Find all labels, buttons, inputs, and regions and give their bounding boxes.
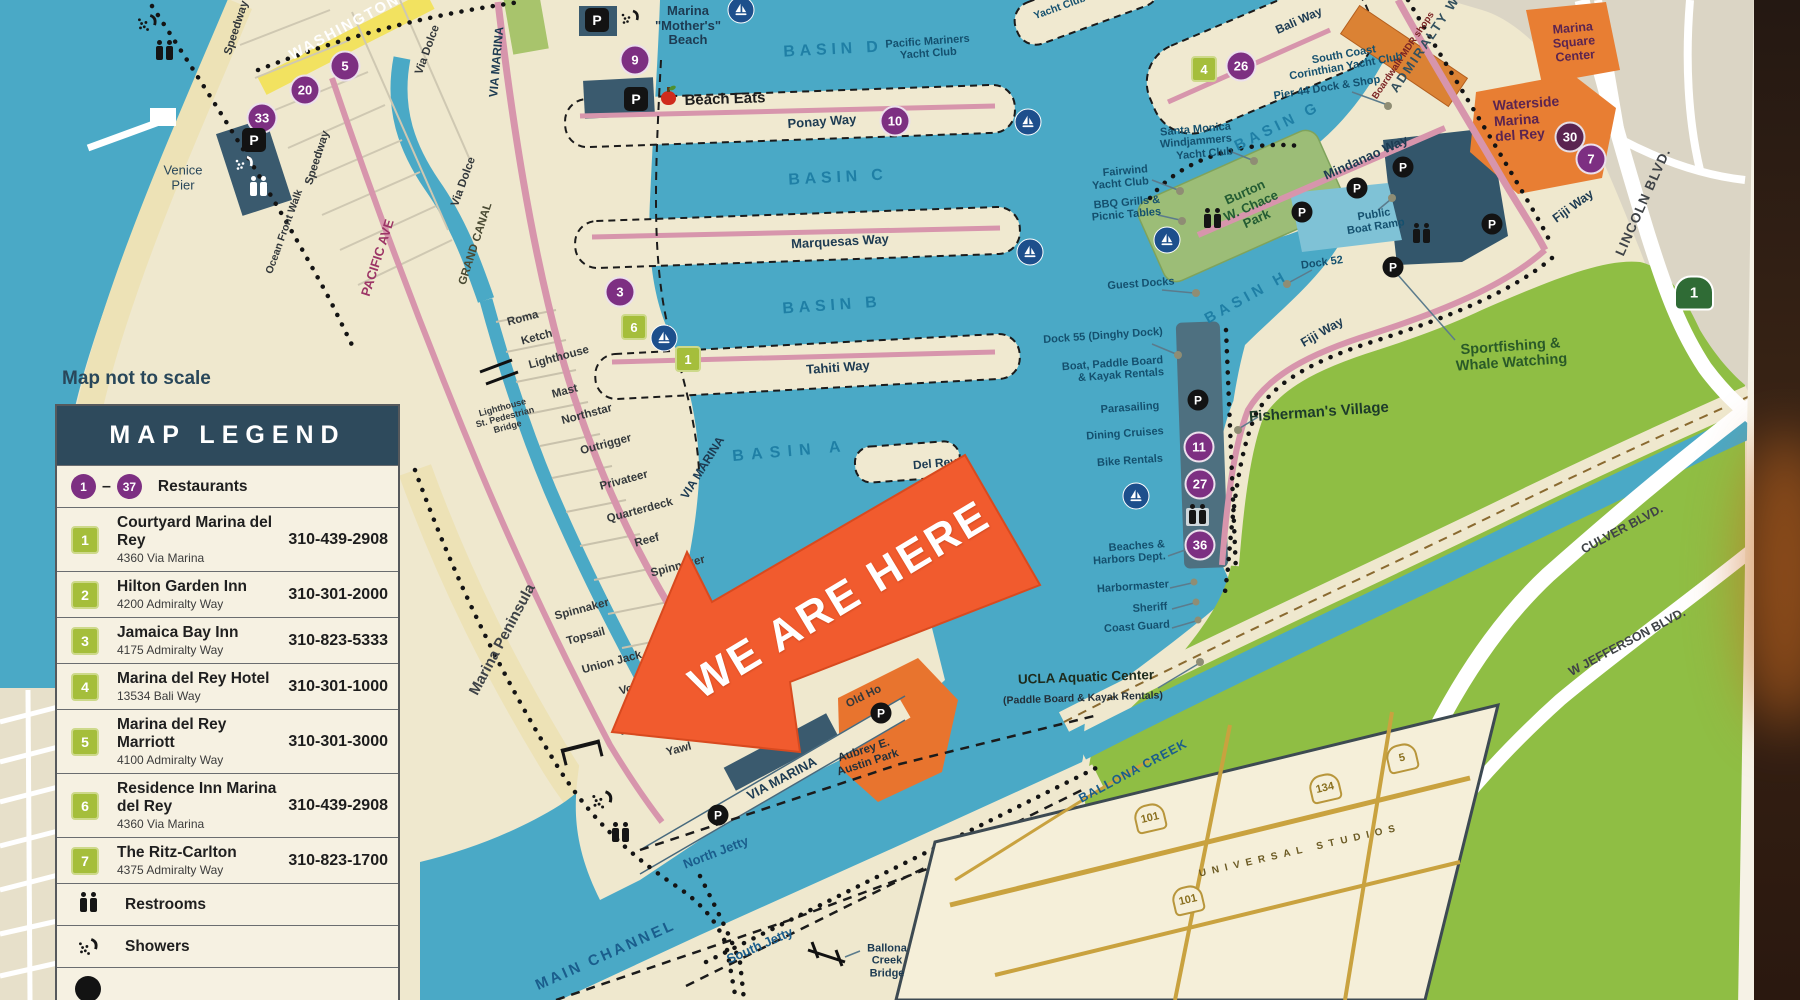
restaurant-marker-26: 26 <box>1226 51 1257 82</box>
hotel-marker-4: 4 <box>1191 56 1217 82</box>
hotel-name: Courtyard Marina del Rey <box>117 514 282 550</box>
beaches-harbors-label: Beaches & Harbors Dept. <box>1092 538 1166 568</box>
range-dash: – <box>102 478 111 496</box>
hotel-name: Marina del Rey Hotel <box>117 670 282 688</box>
restrooms-icon <box>1204 214 1221 228</box>
hotel-phone: 310-823-5333 <box>288 632 388 650</box>
showers-icon <box>134 10 160 41</box>
hotel-name: Jamaica Bay Inn <box>117 624 282 642</box>
restrooms-icon <box>156 46 173 60</box>
hotel-address: 4360 Via Marina <box>117 817 282 831</box>
parking-icon: P <box>708 805 729 826</box>
hotel-name: The Ritz-Carlton <box>117 844 282 862</box>
restaurant-marker-20: 20 <box>290 75 321 106</box>
legend-entry-row: 5 Marina del Rey Marriott4100 Admiralty … <box>57 709 398 773</box>
restrooms-icon <box>1186 508 1209 526</box>
parking-icon: P <box>585 8 609 32</box>
hotel-phone: 310-301-1000 <box>288 678 388 696</box>
hotel-phone: 310-439-2908 <box>288 531 388 549</box>
restaurant-marker-10: 10 <box>880 106 911 137</box>
hotel-marker-3: 3 <box>71 627 99 655</box>
legend-entry-row: 1 Courtyard Marina del Rey4360 Via Marin… <box>57 507 398 571</box>
mothers-beach-label: Marina "Mother's" Beach <box>655 4 721 48</box>
showers-icon <box>71 934 105 960</box>
apple-icon <box>661 91 676 105</box>
map-legend-panel: MAP LEGEND 1 – 37 Restaurants 1 Courtyar… <box>55 404 400 1000</box>
sailboat-icon <box>1154 227 1181 254</box>
hotel-phone: 310-439-2908 <box>288 797 388 815</box>
restaurant-marker-36: 36 <box>1185 530 1216 561</box>
legend-restrooms-row: Restrooms <box>57 883 398 925</box>
hotel-name: Residence Inn Marina del Rey <box>117 780 282 816</box>
hotel-marker-6: 6 <box>621 314 647 340</box>
parking-icon: P <box>1393 157 1414 178</box>
sailboat-icon <box>1017 239 1044 266</box>
hotel-address: 4360 Via Marina <box>117 551 282 565</box>
parking-icon: P <box>624 87 648 111</box>
showers-label: Showers <box>125 938 190 956</box>
fairwind-label: Fairwind Yacht Club <box>1091 163 1150 192</box>
restaurant-marker-9: 9 <box>620 45 651 76</box>
showers-icon <box>588 786 616 819</box>
parking-icon: P <box>242 128 266 152</box>
restrooms-label: Restrooms <box>125 896 206 914</box>
showers-icon <box>618 6 642 35</box>
hotel-address: 4175 Admiralty Way <box>117 643 282 657</box>
hotel-marker-6: 6 <box>71 792 99 820</box>
legend-entry-row: 2 Hilton Garden Inn4200 Admiralty Way 31… <box>57 571 398 617</box>
marina-del-rey-map-photo: WE ARE HERE WASHINGTON Speedway Speedway… <box>0 0 1800 1000</box>
hotel-address: 4200 Admiralty Way <box>117 597 282 611</box>
restrooms-icon <box>250 182 267 196</box>
hotel-marker-2: 2 <box>71 581 99 609</box>
legend-entry-row: 6 Residence Inn Marina del Rey4360 Via M… <box>57 773 398 837</box>
legend-entry-row: 7 The Ritz-Carlton4375 Admiralty Way 310… <box>57 837 398 883</box>
restaurant-marker-5: 5 <box>330 51 361 82</box>
sailboat-icon <box>1123 483 1150 510</box>
restaurant-range-start: 1 <box>71 474 96 499</box>
legend-partial-row <box>57 967 398 1000</box>
restaurant-marker-11: 11 <box>1184 432 1215 463</box>
smwyc-label: Santa Monica Windjammers Yacht Club <box>1159 120 1234 163</box>
parking-icon: P <box>871 703 892 724</box>
restaurants-label: Restaurants <box>158 478 248 496</box>
beach-eats-label: Beach Eats <box>684 90 765 110</box>
sailboat-icon <box>1015 109 1042 136</box>
parking-icon: P <box>1383 257 1404 278</box>
hotel-marker-7: 7 <box>71 847 99 875</box>
hotel-address: 4100 Admiralty Way <box>117 753 282 767</box>
hotel-marker-5: 5 <box>71 728 99 756</box>
hotel-phone: 310-823-1700 <box>288 852 388 870</box>
legend-showers-row: Showers <box>57 925 398 967</box>
ballona-bridge-label: Ballona Creek Bridge <box>867 943 907 980</box>
partial-row-icon <box>71 976 105 1000</box>
legend-title: MAP LEGEND <box>57 406 398 465</box>
hotel-marker-4: 4 <box>71 673 99 701</box>
parking-icon: P <box>1292 202 1313 223</box>
marina-square-label: Marina Square Center <box>1551 19 1597 65</box>
showers-icon <box>232 152 256 181</box>
restaurant-marker-3: 3 <box>605 277 636 308</box>
hotel-address: 13534 Bali Way <box>117 689 282 703</box>
venice-pier-label: Venice Pier <box>163 163 202 192</box>
restaurant-marker-27: 27 <box>1185 469 1216 500</box>
legend-entry-row: 4 Marina del Rey Hotel13534 Bali Way 310… <box>57 663 398 709</box>
hotel-phone: 310-301-2000 <box>288 586 388 604</box>
restaurant-range-end: 37 <box>117 474 142 499</box>
hotel-name: Marina del Rey Marriott <box>117 716 282 752</box>
hotel-marker-1: 1 <box>675 346 701 372</box>
sailboat-icon <box>651 325 678 352</box>
hotel-phone: 310-301-3000 <box>288 733 388 751</box>
hotel-name: Hilton Garden Inn <box>117 578 282 596</box>
restrooms-icon <box>71 898 105 912</box>
highway-1-shield-icon: 1 <box>1674 276 1714 311</box>
legend-restaurants-row: 1 – 37 Restaurants <box>57 465 398 507</box>
parking-icon: P <box>1188 390 1209 411</box>
sheriff-label: Sheriff <box>1132 601 1168 616</box>
scale-note: Map not to scale <box>62 368 211 390</box>
parking-icon: P <box>1347 178 1368 199</box>
restrooms-icon <box>612 828 629 842</box>
restaurant-marker-7: 7 <box>1576 144 1607 175</box>
parking-icon: P <box>1482 214 1503 235</box>
hotel-marker-1: 1 <box>71 526 99 554</box>
hotel-address: 4375 Admiralty Way <box>117 863 282 877</box>
waterside-label: Waterside Marina del Rey <box>1492 94 1562 146</box>
restrooms-icon <box>1413 229 1430 243</box>
legend-entry-row: 3 Jamaica Bay Inn4175 Admiralty Way 310-… <box>57 617 398 663</box>
